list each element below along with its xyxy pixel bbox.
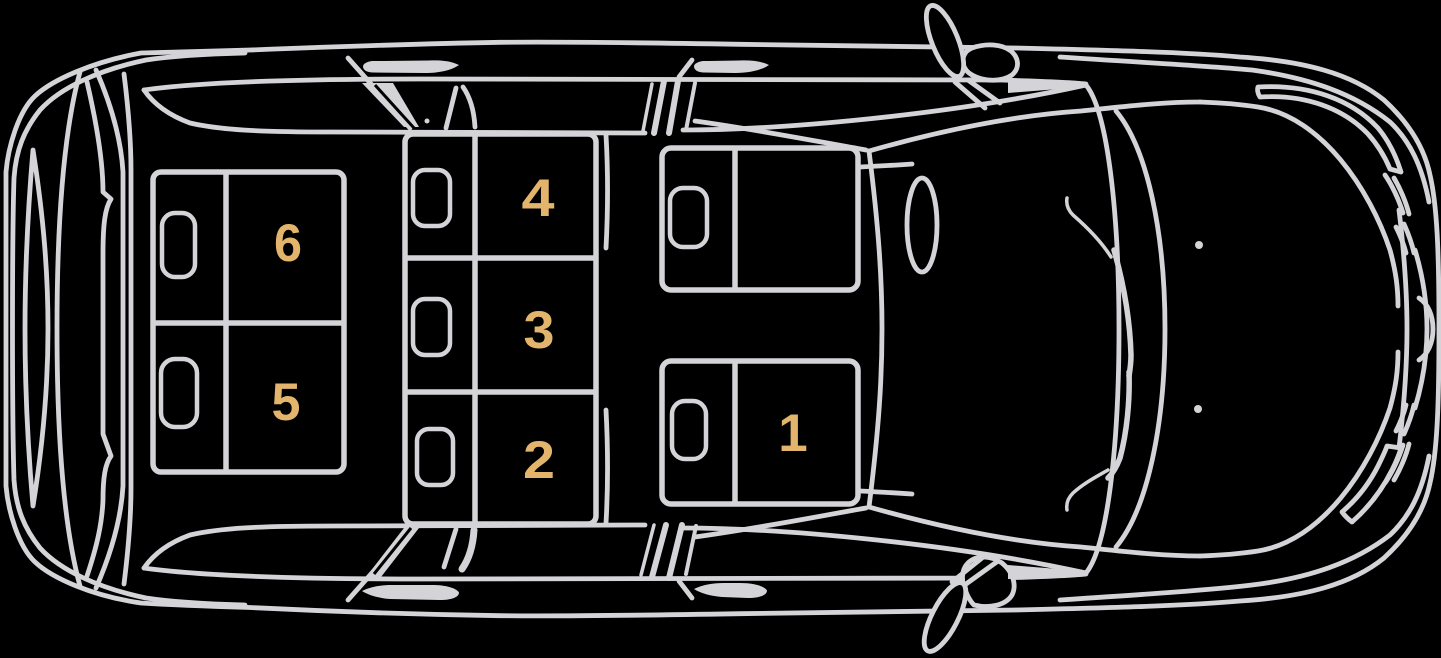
svg-text:6: 6 [274,214,302,273]
svg-text:3: 3 [524,301,555,360]
svg-text:4: 4 [522,169,556,228]
svg-text:1: 1 [778,404,807,463]
svg-text:5: 5 [272,373,301,432]
svg-text:2: 2 [523,431,555,490]
